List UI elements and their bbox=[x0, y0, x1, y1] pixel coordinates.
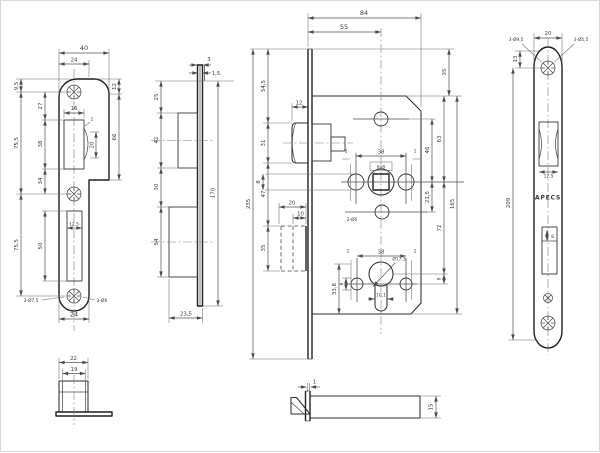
dim-30: 30 bbox=[154, 183, 160, 190]
screw-hole-icon bbox=[541, 61, 555, 75]
dim-case-thickness: 15 bbox=[429, 404, 435, 411]
dim-deadbolt-throw: 20 bbox=[289, 201, 296, 207]
lock-technical-drawing: 12,5 40 24 9,5 75,5 75,5 27 38 34 50 12 … bbox=[0, 0, 600, 452]
deadbolt-cutout bbox=[67, 211, 82, 281]
dim-cylinder-dia: Ø17,3 bbox=[392, 256, 405, 263]
dim-bend-depth: 3 bbox=[207, 57, 210, 63]
dim-latch-height: 31 bbox=[261, 140, 267, 147]
dim-hole-dia-8: 8 bbox=[256, 180, 262, 184]
screw-hole-icon bbox=[67, 85, 81, 99]
dim-offset-right: 1 bbox=[414, 149, 417, 155]
dim-34: 34 bbox=[38, 177, 44, 184]
dim-46: 46 bbox=[425, 146, 431, 153]
dim-offset-low-left: 1 bbox=[347, 249, 350, 255]
dim-case-depth: 84 bbox=[360, 9, 368, 17]
dim-strip-width: 24 bbox=[71, 58, 78, 64]
dim-latch-opening-width: 12,5 bbox=[544, 174, 554, 180]
view-lock-body-front: 8x8 38 1 1 8 2-Ø6 46 21,5 63 72 8 165 35… bbox=[246, 9, 464, 359]
drawing-canvas: 12,5 40 24 9,5 75,5 75,5 27 38 34 50 12 … bbox=[1, 1, 600, 453]
dim-handle-hole-spacing: 38 bbox=[378, 150, 385, 156]
dust-box bbox=[59, 381, 88, 412]
dim-cylinder-slot-width: 10,1 bbox=[376, 293, 386, 299]
view-strike-plate-side: 3 1,5 25 42 30 54 170 23,5 bbox=[151, 57, 234, 323]
dim-33-8: 33,8 bbox=[332, 282, 338, 295]
dim-54: 54 bbox=[154, 238, 160, 245]
dim-bottom-width: 24 bbox=[70, 311, 78, 319]
view-strike-plate-front: 12,5 40 24 9,5 75,5 75,5 27 38 34 50 12 … bbox=[14, 44, 122, 331]
dim-face-offset: 1 bbox=[313, 380, 316, 386]
screw-hole-icon bbox=[67, 289, 81, 303]
dim-8-right: 8 bbox=[437, 277, 443, 280]
dim-deadbolt-opening: 8 bbox=[551, 234, 554, 240]
dim-54-5: 54,5 bbox=[261, 80, 267, 92]
dim-plate-thickness: 1,5 bbox=[212, 71, 221, 77]
callout-countersink: 3-Ø9,5 bbox=[509, 36, 524, 43]
dim-deadbolt-cutout-height: 50 bbox=[38, 242, 44, 249]
dim-cyl-hole-spacing: 38 bbox=[378, 250, 385, 256]
dim-hole-offset: 13 bbox=[513, 56, 519, 63]
callout-drill: 3-Ø5,5 bbox=[574, 36, 589, 43]
box-flange bbox=[56, 412, 112, 416]
dim-hole-span: 209 bbox=[506, 197, 512, 208]
dim-47: 47 bbox=[261, 191, 267, 198]
dim-box-outer-width: 22 bbox=[70, 356, 77, 362]
dim-lower-slot-width: 12,5 bbox=[69, 222, 79, 228]
dim-faceplate-length: 235 bbox=[246, 199, 252, 209]
dim-slot-width: 16 bbox=[71, 106, 78, 112]
dim-latch-cutout-height: 38 bbox=[38, 140, 44, 147]
screw-hole-icon bbox=[67, 187, 81, 201]
brand-logo: APECS bbox=[535, 195, 561, 202]
dim-42: 42 bbox=[154, 137, 160, 144]
callout-holes-csk: 3-Ø7,5 bbox=[24, 297, 39, 304]
dim-tab-offset: 12 bbox=[112, 83, 118, 90]
dim-latch-throw: 12 bbox=[296, 101, 303, 107]
dim-offset-low-right: 1 bbox=[414, 249, 417, 255]
dim-21-5: 21,5 bbox=[425, 191, 431, 203]
deadbolt-opening bbox=[542, 227, 557, 274]
dim-case-height: 165 bbox=[450, 199, 456, 209]
dim-offset-1: 1 bbox=[91, 117, 94, 123]
dim-deadbolt-height: 35 bbox=[261, 245, 267, 252]
view-dust-box-section: 22 19 bbox=[56, 356, 112, 425]
screw-hole-icon bbox=[541, 316, 555, 330]
dim-faceplate-width: 20 bbox=[545, 31, 552, 37]
dim-63: 63 bbox=[437, 136, 443, 143]
dim-top-offset: 9,5 bbox=[14, 82, 20, 91]
view-lock-bottom: 1 15 bbox=[291, 380, 441, 422]
callout-holes-drill: 3-Ø6 bbox=[97, 297, 108, 304]
view-faceplate-front: 12,5 APECS 8 20 13 3-Ø9,5 3-Ø5,5 209 bbox=[506, 31, 589, 355]
dim-box-inner-width: 19 bbox=[71, 367, 78, 373]
dim-plate-length: 170 bbox=[211, 187, 217, 198]
dim-tab-height: 66 bbox=[112, 133, 118, 140]
dim-hole-span-upper: 75,5 bbox=[14, 137, 20, 149]
dim-72: 72 bbox=[437, 225, 443, 232]
dim-offset-left: 1 bbox=[345, 149, 348, 155]
callout-fixing-holes: 2-Ø6 bbox=[347, 216, 358, 223]
latch-tongue-curve bbox=[84, 128, 88, 160]
dim-8-low: 8 bbox=[339, 282, 345, 285]
lock-case-outline bbox=[312, 96, 421, 314]
dim-deadbolt-10: 10 bbox=[297, 212, 304, 218]
dim-spindle-square: 8x8 bbox=[377, 165, 385, 171]
dim-box-depth: 23,5 bbox=[180, 312, 192, 318]
case-bottom bbox=[310, 396, 420, 418]
dim-backset: 55 bbox=[340, 23, 348, 31]
latch-bevel-wedge bbox=[291, 398, 310, 415]
dim-hole-span-lower: 75,5 bbox=[14, 239, 20, 251]
dim-27: 27 bbox=[38, 103, 44, 110]
dim-plate-width: 40 bbox=[80, 44, 88, 52]
dim-35-top: 35 bbox=[442, 69, 448, 76]
dim-tongue-height: 20 bbox=[90, 141, 96, 148]
dim-25: 25 bbox=[154, 94, 160, 101]
